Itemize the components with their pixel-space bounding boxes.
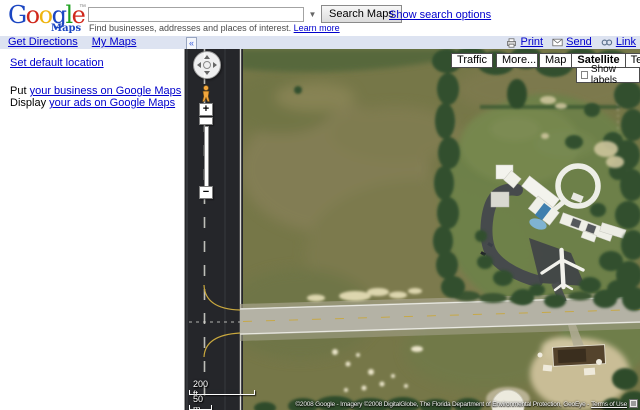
copyright-info-icon[interactable] — [629, 399, 638, 408]
search-input[interactable] — [88, 7, 304, 22]
show-labels-label: Show labels — [591, 64, 635, 86]
ads-prefix: Display — [10, 97, 46, 109]
traffic-button[interactable]: Traffic — [451, 53, 493, 68]
send-button[interactable]: Send — [552, 36, 592, 49]
terms-of-use-link[interactable]: Terms of Use — [591, 401, 627, 408]
printer-icon — [506, 38, 517, 48]
scale-meters-line — [189, 405, 212, 410]
sidebar: Set default location Put your business o… — [0, 49, 185, 410]
show-labels-checkbox[interactable] — [581, 71, 588, 79]
pan-center-icon[interactable] — [203, 61, 211, 69]
trademark-symbol: ™ — [79, 4, 86, 11]
ads-link[interactable]: your ads on Google Maps — [49, 97, 175, 109]
get-directions-link[interactable]: Get Directions — [8, 36, 78, 48]
show-search-options-link[interactable]: Show search options — [389, 9, 491, 21]
show-labels-option[interactable]: Show labels — [576, 67, 640, 83]
google-maps-logo[interactable]: Google ™ Maps — [8, 0, 88, 36]
search-hint: Find businesses, addresses and places of… — [89, 23, 340, 33]
map-copyright: ©2008 Google - Imagery ©2008 DigitalGlob… — [295, 401, 627, 408]
more-button[interactable]: More... — [496, 53, 538, 68]
logo-maps-label: Maps — [51, 23, 81, 34]
zoom-in-button[interactable]: + — [199, 103, 213, 116]
copyright-text: ©2008 Google - Imagery ©2008 DigitalGlob… — [295, 401, 589, 408]
set-default-location-link[interactable]: Set default location — [10, 57, 104, 69]
pan-up-arrow-icon[interactable] — [204, 55, 210, 59]
satellite-imagery[interactable] — [185, 49, 640, 410]
search-dropdown-arrow-icon[interactable]: ▼ — [307, 8, 318, 21]
pan-down-arrow-icon[interactable] — [204, 71, 210, 75]
zoom-slider-handle[interactable] — [199, 117, 213, 125]
toolbar-right: Print Send Link — [506, 36, 636, 49]
learn-more-link[interactable]: Learn more — [294, 23, 340, 33]
pan-left-arrow-icon[interactable] — [197, 62, 201, 68]
map-viewport: + − Traffic More... Map Satellite Terrai… — [185, 49, 640, 410]
chain-link-icon — [601, 38, 613, 47]
pan-right-arrow-icon[interactable] — [213, 62, 217, 68]
envelope-icon — [552, 38, 563, 47]
toolbar-left: Get Directions My Maps — [8, 36, 147, 49]
header: Google ™ Maps ▼ Search Maps Show search … — [0, 0, 640, 36]
toolbar: Get Directions My Maps Print Send Link « — [0, 36, 640, 49]
business-promo-line: Put your business on Google Maps — [10, 85, 181, 97]
print-button[interactable]: Print — [506, 36, 543, 49]
pan-control[interactable] — [193, 51, 221, 79]
zoom-out-button[interactable]: − — [199, 186, 213, 199]
link-button[interactable]: Link — [601, 36, 636, 49]
business-link[interactable]: your business on Google Maps — [30, 85, 182, 97]
search-hint-text: Find businesses, addresses and places of… — [89, 23, 291, 33]
my-maps-link[interactable]: My Maps — [92, 36, 137, 48]
ads-promo-line: Display your ads on Google Maps — [10, 97, 175, 109]
pegman-street-view-icon[interactable] — [200, 85, 212, 103]
business-prefix: Put — [10, 85, 27, 97]
map-view-button[interactable]: Map — [539, 53, 572, 68]
google-maps-app: Google ™ Maps ▼ Search Maps Show search … — [0, 0, 640, 410]
zoom-slider-track[interactable] — [204, 126, 209, 188]
